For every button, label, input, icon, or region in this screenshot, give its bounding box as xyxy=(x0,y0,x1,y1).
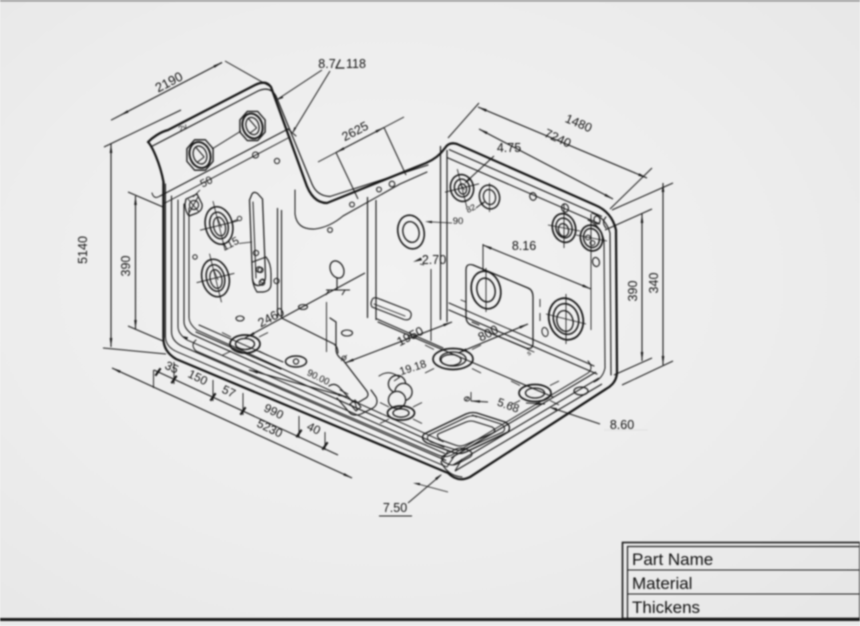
svg-text:118: 118 xyxy=(346,57,366,71)
svg-text:8.60: 8.60 xyxy=(610,418,634,432)
svg-text:390: 390 xyxy=(119,256,133,277)
svg-text:8.7: 8.7 xyxy=(318,57,335,71)
svg-text:340: 340 xyxy=(647,273,661,294)
svg-text:5140: 5140 xyxy=(76,236,90,264)
svg-text:2.70: 2.70 xyxy=(422,253,446,267)
svg-text:390: 390 xyxy=(626,281,640,302)
svg-text:7.50: 7.50 xyxy=(383,501,407,515)
svg-text:90: 90 xyxy=(453,216,464,227)
svg-text:Thickens: Thickens xyxy=(632,598,700,617)
svg-text:8.16: 8.16 xyxy=(512,239,536,253)
svg-text:Part Name: Part Name xyxy=(632,550,713,569)
svg-text:4.75: 4.75 xyxy=(497,141,521,155)
svg-text:Material: Material xyxy=(632,574,692,593)
